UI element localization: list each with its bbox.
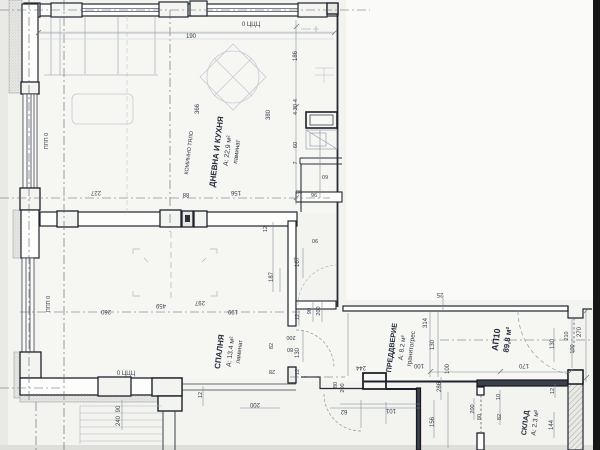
svg-text:270: 270 bbox=[577, 326, 583, 337]
svg-text:12: 12 bbox=[550, 388, 556, 394]
svg-text:101: 101 bbox=[385, 407, 396, 413]
svg-text:227: 227 bbox=[90, 189, 101, 195]
svg-text:96: 96 bbox=[311, 191, 317, 197]
svg-text:130: 130 bbox=[295, 347, 301, 358]
svg-text:82: 82 bbox=[269, 343, 275, 349]
svg-text:90: 90 bbox=[312, 237, 318, 243]
svg-text:244: 244 bbox=[355, 364, 366, 370]
svg-text:ППП 0: ППП 0 bbox=[44, 133, 50, 149]
svg-text:156: 156 bbox=[230, 189, 241, 195]
svg-text:380: 380 bbox=[266, 109, 272, 120]
svg-text:170: 170 bbox=[518, 362, 529, 368]
svg-text:100: 100 bbox=[413, 362, 424, 368]
svg-text:210: 210 bbox=[564, 331, 570, 340]
svg-text:10: 10 bbox=[496, 394, 502, 400]
svg-text:12: 12 bbox=[295, 369, 301, 375]
svg-text:200: 200 bbox=[340, 383, 346, 392]
svg-text:82: 82 bbox=[497, 414, 503, 420]
svg-text:60: 60 bbox=[322, 173, 328, 179]
svg-text:100: 100 bbox=[445, 363, 451, 374]
svg-text:200: 200 bbox=[286, 334, 295, 340]
svg-text:4-20-4: 4-20-4 bbox=[293, 99, 299, 115]
svg-text:190: 190 bbox=[186, 34, 197, 40]
svg-text:100: 100 bbox=[570, 344, 576, 353]
svg-text:80: 80 bbox=[477, 414, 483, 420]
svg-text:314: 314 bbox=[423, 317, 429, 328]
svg-text:0 ЦЦЦ: 0 ЦЦЦ bbox=[242, 22, 261, 28]
svg-text:156: 156 bbox=[430, 416, 436, 427]
svg-text:25: 25 bbox=[436, 291, 443, 297]
svg-text:297: 297 bbox=[194, 299, 205, 305]
svg-text:187: 187 bbox=[269, 271, 275, 282]
svg-text:ППП 0: ППП 0 bbox=[46, 296, 52, 312]
svg-text:286: 286 bbox=[437, 381, 443, 392]
svg-text:60: 60 bbox=[293, 142, 299, 148]
svg-text:186: 186 bbox=[293, 50, 299, 61]
svg-text:7: 7 bbox=[293, 161, 299, 164]
svg-text:12: 12 bbox=[198, 392, 204, 398]
svg-text:12: 12 bbox=[263, 226, 269, 232]
svg-text:90: 90 bbox=[307, 308, 313, 314]
svg-text:260: 260 bbox=[100, 308, 111, 314]
svg-text:167: 167 bbox=[295, 256, 301, 267]
svg-text:200: 200 bbox=[316, 306, 322, 315]
svg-text:200: 200 bbox=[470, 404, 476, 413]
svg-text:62: 62 bbox=[340, 408, 347, 414]
svg-text:240: 240 bbox=[116, 415, 122, 426]
svg-text:12: 12 bbox=[295, 314, 301, 320]
svg-text:144: 144 bbox=[549, 419, 555, 430]
svg-text:88: 88 bbox=[182, 191, 189, 197]
svg-text:80: 80 bbox=[333, 382, 339, 388]
svg-text:200: 200 bbox=[249, 401, 260, 407]
svg-text:0 ЦЦЦ: 0 ЦЦЦ bbox=[117, 371, 136, 377]
svg-text:130: 130 bbox=[550, 338, 556, 349]
svg-text:199: 199 bbox=[227, 308, 238, 314]
svg-text:28: 28 bbox=[269, 368, 275, 374]
svg-text:130: 130 bbox=[430, 339, 436, 350]
svg-text:90: 90 bbox=[116, 405, 122, 412]
svg-text:80: 80 bbox=[287, 346, 293, 352]
svg-text:366: 366 bbox=[195, 103, 201, 114]
svg-text:99: 99 bbox=[296, 188, 302, 194]
svg-text:459: 459 bbox=[155, 302, 166, 308]
